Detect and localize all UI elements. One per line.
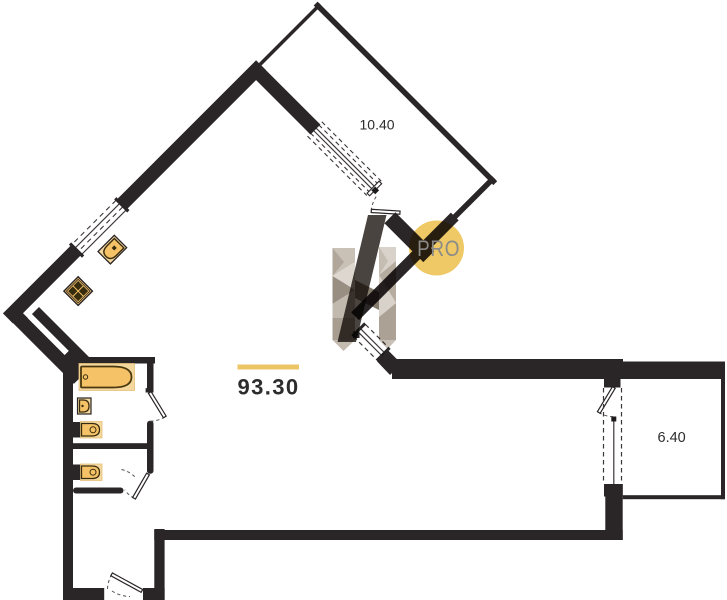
svg-text:93.30: 93.30	[238, 374, 300, 399]
svg-text:PRO: PRO	[417, 237, 460, 262]
svg-text:6.40: 6.40	[658, 430, 686, 446]
svg-text:10.40: 10.40	[360, 117, 395, 133]
